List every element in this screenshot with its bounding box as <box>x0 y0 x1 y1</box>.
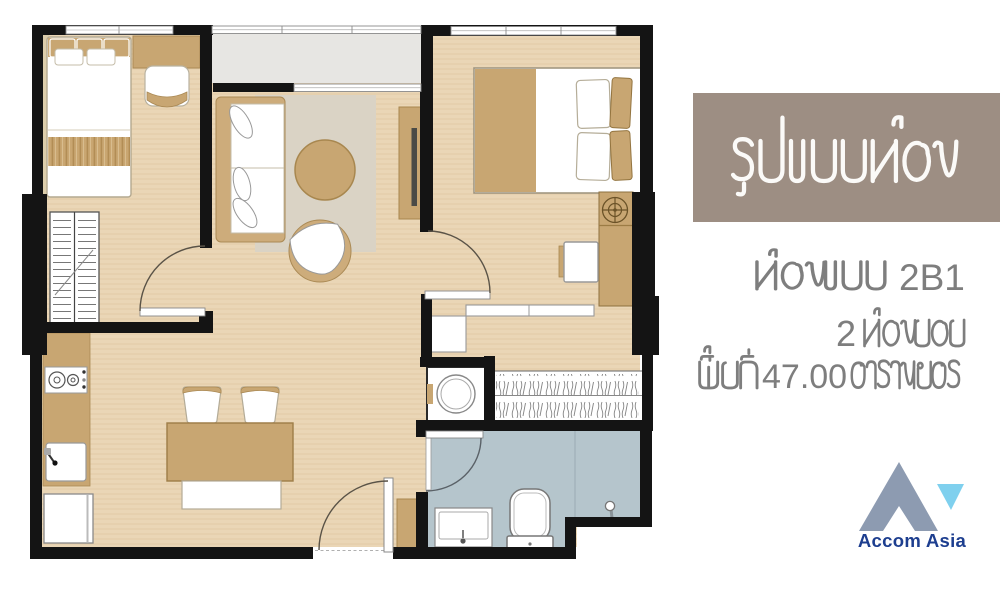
svg-text:2: 2 <box>836 313 856 354</box>
svg-text:47.00: 47.00 <box>762 358 847 396</box>
svg-text:Accom Asia: Accom Asia <box>858 530 967 551</box>
svg-text:2B1: 2B1 <box>899 257 965 298</box>
